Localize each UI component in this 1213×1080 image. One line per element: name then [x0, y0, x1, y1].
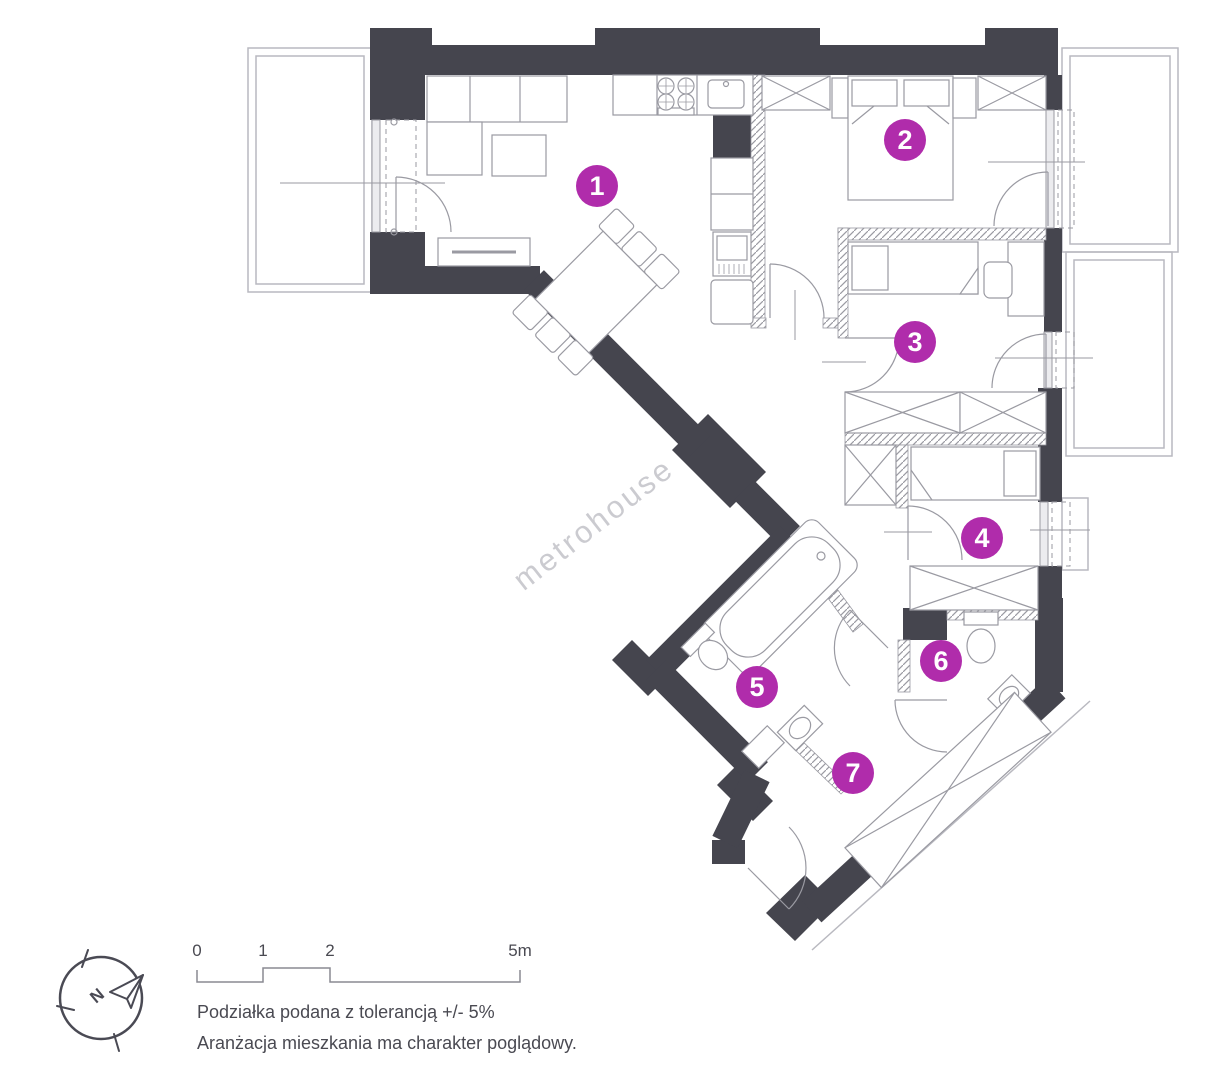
north-arrow-icon	[110, 975, 143, 1008]
wardrobe-hall7	[845, 692, 1051, 887]
floor-plan-canvas: metrohouse 1 2 3 4 5 6 7	[0, 0, 1213, 1080]
nightstand-right	[953, 78, 976, 118]
wall-right-top	[1044, 75, 1062, 110]
wall-stub-2	[823, 318, 838, 328]
scale-label-1: 1	[258, 941, 267, 960]
pillow	[904, 80, 949, 106]
wall-room3-room4	[845, 433, 1046, 445]
wardrobe-room2-left	[762, 76, 830, 110]
badge-number: 3	[907, 327, 922, 357]
wall-pilaster-1	[370, 28, 432, 46]
glazing-room4	[1040, 502, 1048, 566]
glazing-room3-dashed	[1056, 332, 1074, 388]
caption-arrangement: Aranżacja mieszkania ma charakter pogląd…	[197, 1033, 577, 1053]
balcony-right-top	[1062, 48, 1178, 252]
coffee-table	[492, 135, 546, 176]
scale-bar-line	[197, 968, 520, 982]
kitchen-tall-units	[711, 158, 753, 324]
scale-label-2: 2	[325, 941, 334, 960]
room-badge-5: 5	[736, 666, 778, 708]
scale-label-5m: 5m	[508, 941, 532, 960]
badge-number: 6	[933, 646, 948, 676]
wall-left-lower	[370, 232, 425, 294]
floor-plan-page: metrohouse 1 2 3 4 5 6 7	[0, 0, 1213, 1080]
wall-pilaster-3	[985, 28, 1058, 46]
wall-room4-left	[896, 445, 908, 508]
balcony-left	[248, 48, 372, 292]
wardrobe-room2-right	[978, 76, 1046, 110]
wardrobe-room3	[845, 392, 1046, 433]
glazing-living-dashed	[386, 120, 416, 232]
wall-wc-block	[903, 608, 947, 640]
glazing-room2	[1046, 110, 1054, 228]
chair-room3	[984, 262, 1012, 298]
door-balcony-room3	[992, 334, 1093, 388]
sink-bath5	[777, 705, 822, 750]
caption-tolerance: Podziałka podana z tolerancją +/- 5%	[197, 1002, 495, 1022]
fridge	[711, 280, 753, 324]
door-balcony-living	[280, 119, 451, 235]
nightstand-left	[832, 78, 848, 118]
door-wc6	[895, 700, 947, 752]
scale-label-0: 0	[192, 941, 201, 960]
shaft	[845, 445, 896, 505]
wall-right-mid1	[1044, 228, 1062, 332]
room-badge-3: 3	[894, 321, 936, 363]
scale-bar: 0 1 2 5m	[192, 941, 532, 982]
wall-living-bottom	[425, 266, 540, 294]
badge-number: 4	[974, 523, 989, 553]
wall-wc-left	[898, 640, 910, 692]
terrace-edge	[812, 701, 1090, 950]
room-badge-4: 4	[961, 517, 1003, 559]
glazing-living	[372, 120, 380, 232]
door-room3	[822, 338, 899, 392]
bed-room4	[911, 447, 1040, 500]
wall-kitchen-column	[713, 112, 757, 158]
badge-number: 2	[897, 125, 912, 155]
door-bath5	[834, 610, 888, 686]
balcony-right-top-inner	[1070, 56, 1170, 244]
compass: N	[57, 950, 143, 1051]
room-badge-2: 2	[884, 119, 926, 161]
tv-unit	[438, 238, 530, 266]
pillow	[852, 80, 897, 106]
balcony-right-bottom	[1066, 252, 1172, 456]
wall-room2-room3	[838, 228, 1046, 240]
room-badge-6: 6	[920, 640, 962, 682]
wall-top	[370, 45, 1058, 75]
wardrobe-room4	[910, 566, 1038, 610]
desk-room3	[1008, 242, 1044, 316]
kitchen-sink	[708, 80, 744, 108]
compass-letter: N	[86, 985, 108, 1007]
pillow	[852, 246, 888, 290]
french-balcony	[1062, 498, 1088, 570]
glazing-room3	[1044, 332, 1052, 388]
room-badge-7: 7	[832, 752, 874, 794]
pillow	[1004, 451, 1036, 496]
glazing-room4-dashed	[1052, 502, 1070, 566]
glazing-room2-dashed	[1058, 110, 1074, 228]
door-hall	[770, 264, 824, 340]
bed-room3	[848, 242, 978, 294]
balcony-left-inner	[256, 56, 364, 284]
toilet-wc6	[964, 612, 998, 663]
badge-number: 5	[749, 672, 764, 702]
wall-room3-left	[838, 228, 848, 338]
room-badge-1: 1	[576, 165, 618, 207]
wall-pilaster-2	[595, 28, 820, 46]
badge-number: 1	[589, 171, 604, 201]
wall-left-upper	[370, 45, 425, 120]
captions: Podziałka podana z tolerancją +/- 5% Ara…	[197, 1002, 577, 1053]
badge-number: 7	[845, 758, 860, 788]
watermark: metrohouse	[506, 450, 680, 597]
balcony-right-bottom-inner	[1074, 260, 1164, 448]
